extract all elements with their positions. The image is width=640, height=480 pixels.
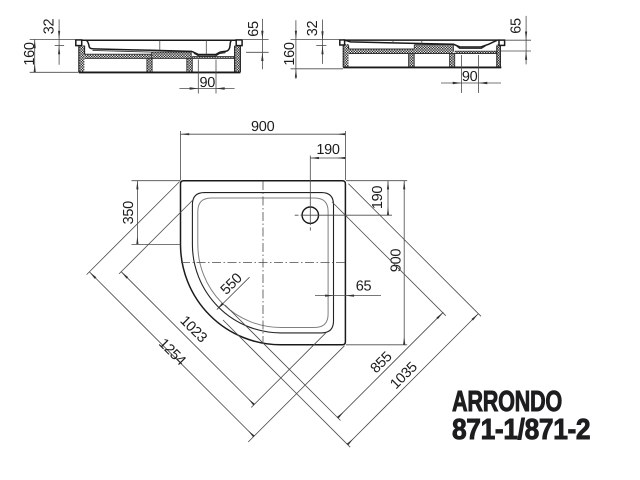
svg-text:190: 190 (316, 142, 340, 158)
svg-text:32: 32 (41, 19, 57, 35)
svg-text:65: 65 (509, 18, 525, 34)
svg-text:90: 90 (200, 75, 216, 91)
svg-text:855: 855 (368, 349, 396, 377)
svg-text:550: 550 (218, 270, 246, 298)
svg-text:900: 900 (251, 119, 275, 135)
svg-text:160: 160 (22, 42, 38, 66)
svg-text:160: 160 (282, 42, 298, 66)
svg-text:90: 90 (462, 69, 478, 85)
svg-text:32: 32 (305, 21, 321, 37)
svg-text:65: 65 (356, 278, 372, 294)
svg-text:350: 350 (121, 201, 137, 225)
svg-text:1254: 1254 (155, 336, 188, 369)
svg-text:65: 65 (246, 21, 262, 37)
svg-text:190: 190 (370, 186, 386, 210)
svg-text:1023: 1023 (176, 313, 209, 346)
